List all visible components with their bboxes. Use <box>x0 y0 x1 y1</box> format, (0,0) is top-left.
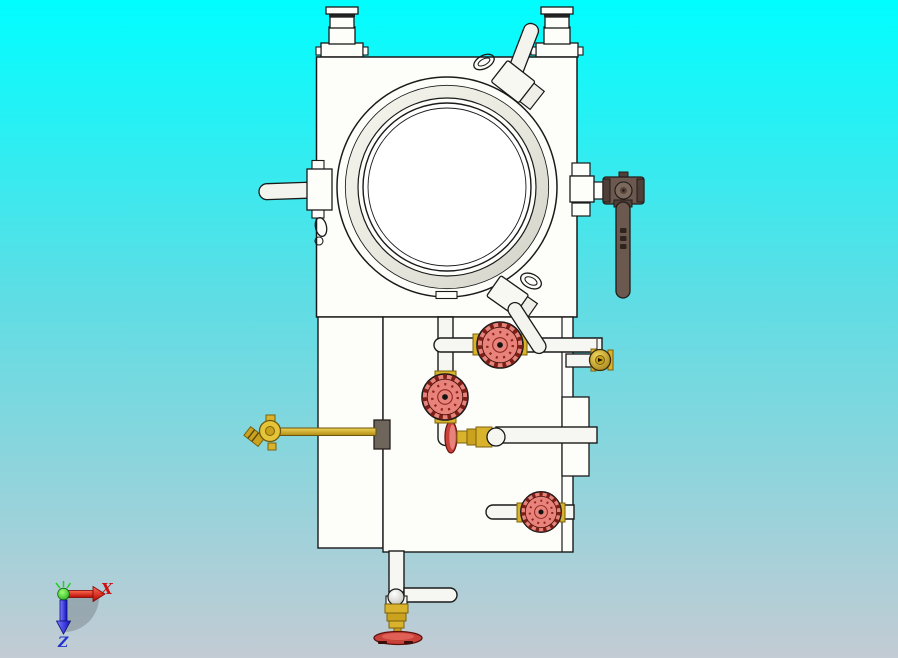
clamp-lever-left[interactable] <box>259 182 314 200</box>
handwheel[interactable] <box>422 374 468 420</box>
door-bottom-lug <box>436 292 457 299</box>
top-nozzle-left[interactable] <box>316 7 368 57</box>
ball-valve-handle[interactable] <box>616 202 630 298</box>
triad-shadow <box>64 597 99 632</box>
ball-valve-right[interactable] <box>603 172 644 298</box>
drain-pipe-vertical[interactable] <box>389 551 404 592</box>
pressure-vessel-model[interactable] <box>244 7 644 645</box>
model-canvas[interactable]: X Z <box>0 0 898 658</box>
pipe-horizontal-middle[interactable] <box>496 427 597 443</box>
handwheel[interactable] <box>521 492 561 532</box>
handwheel[interactable] <box>477 322 523 368</box>
drain-pipe-side[interactable] <box>404 588 457 602</box>
orientation-triad: X Z <box>56 580 114 651</box>
door-ring[interactable] <box>337 77 557 299</box>
cad-viewport[interactable]: X Z <box>0 0 898 658</box>
handle-marking <box>620 228 627 233</box>
valve-bonnet-ball <box>388 589 404 605</box>
brass-ball-valve-right[interactable] <box>590 349 614 371</box>
axis-z-label: Z <box>57 635 69 651</box>
door-hinge-right[interactable] <box>570 163 603 216</box>
axis-x-label: X <box>100 580 114 598</box>
origin-ball <box>56 581 71 600</box>
union-nut <box>487 428 505 446</box>
